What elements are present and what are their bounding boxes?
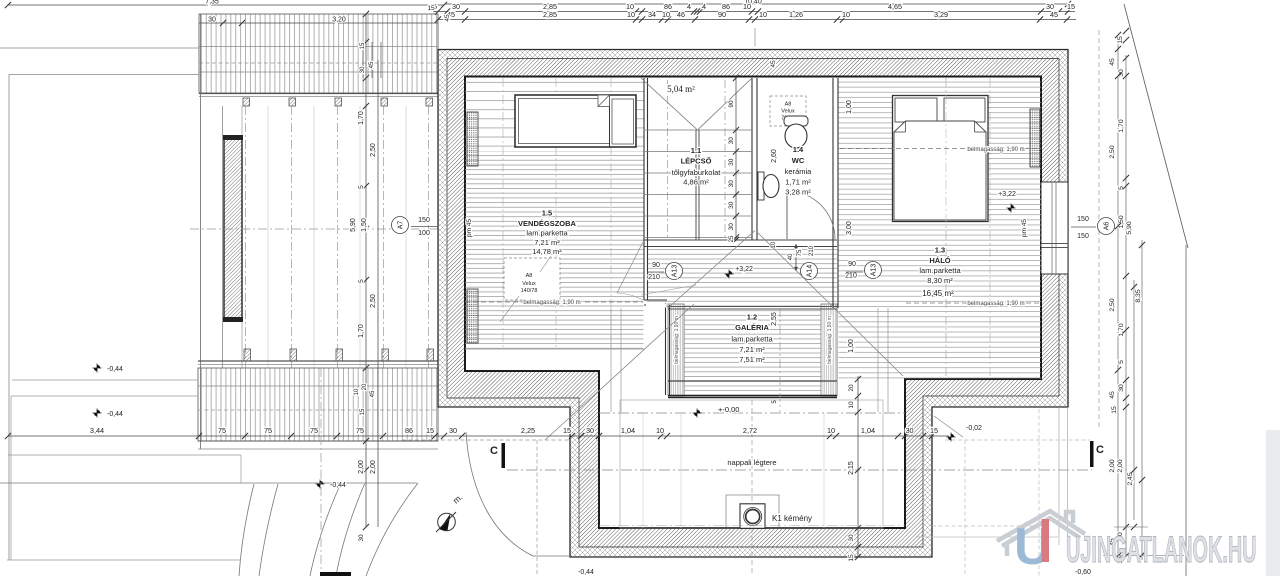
svg-text:75: 75 [218, 426, 226, 435]
svg-text:1,70: 1,70 [358, 111, 365, 125]
svg-text:10: 10 [662, 10, 670, 19]
svg-text:5,04 m²: 5,04 m² [667, 84, 695, 94]
svg-text:1.5: 1.5 [542, 209, 552, 218]
svg-text:4: 4 [687, 2, 691, 11]
svg-text:1,70: 1,70 [1118, 323, 1125, 336]
svg-text:34: 34 [648, 10, 656, 19]
svg-text:45: 45 [1050, 10, 1058, 19]
svg-text:46: 46 [677, 10, 685, 19]
svg-text:10: 10 [759, 10, 767, 19]
svg-text:1,00: 1,00 [846, 100, 853, 114]
svg-text:86: 86 [405, 426, 413, 435]
svg-text:2,25: 2,25 [521, 426, 535, 435]
svg-text:15: 15 [1067, 2, 1075, 11]
svg-text:3,44: 3,44 [90, 426, 104, 435]
svg-text:tőlgyfaburkolat: tőlgyfaburkolat [672, 168, 722, 177]
svg-text:belmagasság: 1,90 m: belmagasság: 1,90 m [827, 316, 833, 364]
svg-text:2,50: 2,50 [370, 294, 377, 308]
svg-text:10: 10 [656, 426, 664, 435]
svg-text:7,21 m²: 7,21 m² [739, 345, 765, 354]
svg-text:16,45 m²: 16,45 m² [922, 289, 954, 298]
svg-text:2,50: 2,50 [1109, 298, 1116, 311]
svg-text:10: 10 [627, 10, 635, 19]
svg-text:4: 4 [702, 2, 706, 11]
svg-text:2,00: 2,00 [370, 460, 377, 474]
svg-text:-0,02: -0,02 [966, 425, 982, 432]
svg-text:lam.parketta: lam.parketta [526, 229, 568, 238]
svg-text:7,51 m²: 7,51 m² [739, 355, 765, 364]
svg-text:2,60: 2,60 [771, 149, 778, 163]
svg-text:2,50: 2,50 [370, 143, 377, 157]
svg-text:150: 150 [1077, 216, 1089, 223]
svg-text:30: 30 [728, 137, 735, 145]
svg-text:15: 15 [426, 426, 434, 435]
svg-text:nappali légtere: nappali légtere [727, 458, 776, 467]
svg-text:15: 15 [930, 426, 938, 435]
svg-text:A14: A14 [807, 265, 814, 278]
svg-text:A7: A7 [398, 221, 405, 230]
svg-text:15: 15 [848, 554, 855, 562]
svg-text:5: 5 [358, 185, 365, 189]
svg-text:40: 40 [788, 253, 794, 260]
svg-text:210: 210 [809, 245, 815, 256]
svg-text:20: 20 [362, 383, 368, 390]
svg-text:A13: A13 [672, 265, 679, 278]
svg-text:2,00: 2,00 [1109, 459, 1116, 472]
svg-text:1,50: 1,50 [1118, 215, 1125, 228]
svg-text:25: 25 [729, 235, 735, 242]
svg-text:GALÉRIA: GALÉRIA [735, 323, 769, 332]
svg-text:1.2: 1.2 [747, 313, 757, 322]
svg-text:45: 45 [1109, 391, 1116, 399]
svg-text:2,85: 2,85 [543, 10, 557, 19]
svg-text:4,86 m²: 4,86 m² [683, 178, 709, 187]
svg-text:lam.parketta: lam.parketta [731, 335, 773, 344]
svg-text:45: 45 [1109, 58, 1116, 66]
svg-text:8,35: 8,35 [1135, 289, 1142, 302]
svg-text:1,26: 1,26 [789, 10, 803, 19]
svg-text:pm 45: pm 45 [466, 219, 473, 237]
svg-text:30: 30 [848, 534, 855, 542]
svg-text:30: 30 [449, 426, 457, 435]
svg-text:Velux: Velux [522, 281, 536, 287]
svg-text:WC: WC [792, 156, 805, 165]
svg-text:90: 90 [652, 262, 660, 269]
svg-text:VENDÉGSZOBA: VENDÉGSZOBA [518, 219, 577, 228]
svg-text:45: 45 [370, 390, 376, 397]
svg-text:75: 75 [797, 249, 803, 256]
svg-text:-0,44: -0,44 [578, 569, 594, 576]
svg-text:1.4: 1.4 [793, 145, 804, 154]
svg-text:45: 45 [770, 60, 777, 68]
svg-text:2,72: 2,72 [743, 426, 757, 435]
svg-text:kerámia: kerámia [785, 167, 813, 176]
svg-text:1,50: 1,50 [361, 218, 368, 232]
svg-text:m.: m. [451, 492, 465, 506]
svg-text:90: 90 [848, 261, 856, 268]
svg-text:100: 100 [418, 230, 430, 237]
svg-text:3,00: 3,00 [846, 221, 853, 235]
svg-text:2,15: 2,15 [848, 461, 855, 475]
svg-text:10: 10 [827, 426, 835, 435]
svg-text:1,00: 1,00 [848, 339, 855, 353]
svg-text:90: 90 [718, 10, 726, 19]
svg-text:150: 150 [1077, 233, 1089, 240]
svg-text:30: 30 [905, 426, 913, 435]
svg-text:14,78 m²: 14,78 m² [532, 247, 562, 256]
svg-text:LÉPCSŐ: LÉPCSŐ [681, 157, 712, 166]
svg-text:5: 5 [1118, 360, 1125, 364]
svg-text:1.3: 1.3 [935, 246, 945, 255]
svg-text:75: 75 [310, 426, 318, 435]
svg-text:15: 15 [1111, 406, 1118, 414]
svg-text:1.1: 1.1 [691, 146, 701, 155]
svg-text:5: 5 [358, 279, 365, 283]
svg-text:15: 15 [563, 426, 571, 435]
svg-text:-0,44: -0,44 [107, 411, 123, 418]
svg-text:K1 kémény: K1 kémény [772, 514, 812, 523]
svg-text:2,50: 2,50 [1109, 145, 1116, 158]
svg-text:30: 30 [1118, 384, 1125, 392]
svg-text:140/78: 140/78 [521, 288, 538, 294]
svg-text:+3,22: +3,22 [998, 191, 1016, 198]
svg-text:10: 10 [743, 2, 751, 11]
svg-text:2,00: 2,00 [1117, 459, 1124, 472]
svg-text:7,35: 7,35 [205, 0, 219, 6]
svg-text:+-0,00: +-0,00 [718, 405, 739, 414]
svg-text:+3,22: +3,22 [735, 266, 753, 273]
svg-text:lam.parketta: lam.parketta [919, 266, 961, 275]
svg-text:30: 30 [360, 66, 366, 73]
svg-text:-0,44: -0,44 [107, 366, 123, 373]
svg-text:pm 45: pm 45 [1021, 219, 1028, 237]
svg-text:75: 75 [264, 426, 272, 435]
svg-text:A8: A8 [785, 102, 792, 108]
svg-text:30: 30 [728, 201, 735, 209]
svg-text:3,29: 3,29 [934, 10, 948, 19]
svg-text:45: 45 [444, 14, 451, 22]
svg-text:1,71 m²: 1,71 m² [785, 178, 811, 187]
svg-text:210: 210 [845, 273, 857, 280]
svg-text:1,70: 1,70 [358, 324, 365, 338]
svg-text:belmagasság: 1,90 m: belmagasság: 1,90 m [674, 316, 680, 364]
svg-text:7,21 m²: 7,21 m² [534, 238, 560, 247]
svg-text:3,20: 3,20 [332, 17, 346, 24]
svg-text:1,70: 1,70 [1118, 119, 1125, 132]
svg-text:30: 30 [728, 223, 735, 231]
svg-text:-0,44: -0,44 [330, 482, 346, 489]
svg-text:10: 10 [848, 401, 855, 409]
svg-text:2,55: 2,55 [771, 312, 778, 326]
svg-text:8,30 m²: 8,30 m² [927, 276, 953, 285]
svg-text:30: 30 [208, 17, 216, 24]
svg-text:A13: A13 [871, 264, 878, 277]
svg-text:2,45: 2,45 [1127, 472, 1134, 485]
svg-text:15: 15 [427, 5, 435, 12]
svg-text:HÁLÓ: HÁLÓ [929, 256, 950, 265]
svg-text:90: 90 [728, 100, 735, 108]
svg-text:A8: A8 [526, 273, 533, 279]
svg-text:2,00: 2,00 [358, 460, 365, 474]
svg-text:3,28 m²: 3,28 m² [785, 188, 811, 197]
svg-text:C: C [490, 445, 498, 457]
svg-text:15: 15 [360, 408, 366, 415]
svg-text:belmagasság: 1,90 m: belmagasság: 1,90 m [967, 301, 1024, 307]
svg-text:10: 10 [842, 10, 850, 19]
svg-text:30: 30 [358, 534, 365, 542]
svg-text:30: 30 [586, 426, 594, 435]
svg-text:belmagasság: 1,90 m: belmagasság: 1,90 m [523, 300, 580, 306]
svg-text:30: 30 [728, 180, 735, 188]
svg-text:75: 75 [356, 426, 364, 435]
svg-text:1,04: 1,04 [861, 426, 875, 435]
svg-text:C: C [1096, 444, 1104, 456]
svg-text:UJINGATLANOK.HU: UJINGATLANOK.HU [1066, 530, 1257, 571]
svg-text:20: 20 [848, 384, 855, 392]
svg-text:A6: A6 [1104, 222, 1111, 231]
svg-text:10: 10 [354, 388, 360, 395]
svg-text:150: 150 [418, 217, 430, 224]
svg-text:4,65: 4,65 [888, 2, 902, 11]
svg-text:1,04: 1,04 [621, 426, 635, 435]
svg-text:15: 15 [360, 42, 366, 49]
svg-text:5,90: 5,90 [350, 218, 357, 232]
svg-text:belmagasság: 1,90 m: belmagasság: 1,90 m [967, 147, 1024, 153]
svg-text:30: 30 [728, 158, 735, 166]
svg-text:45: 45 [369, 61, 375, 68]
svg-text:5,90: 5,90 [1126, 221, 1133, 234]
svg-text:Velux: Velux [781, 109, 795, 115]
svg-text:210: 210 [648, 274, 660, 281]
